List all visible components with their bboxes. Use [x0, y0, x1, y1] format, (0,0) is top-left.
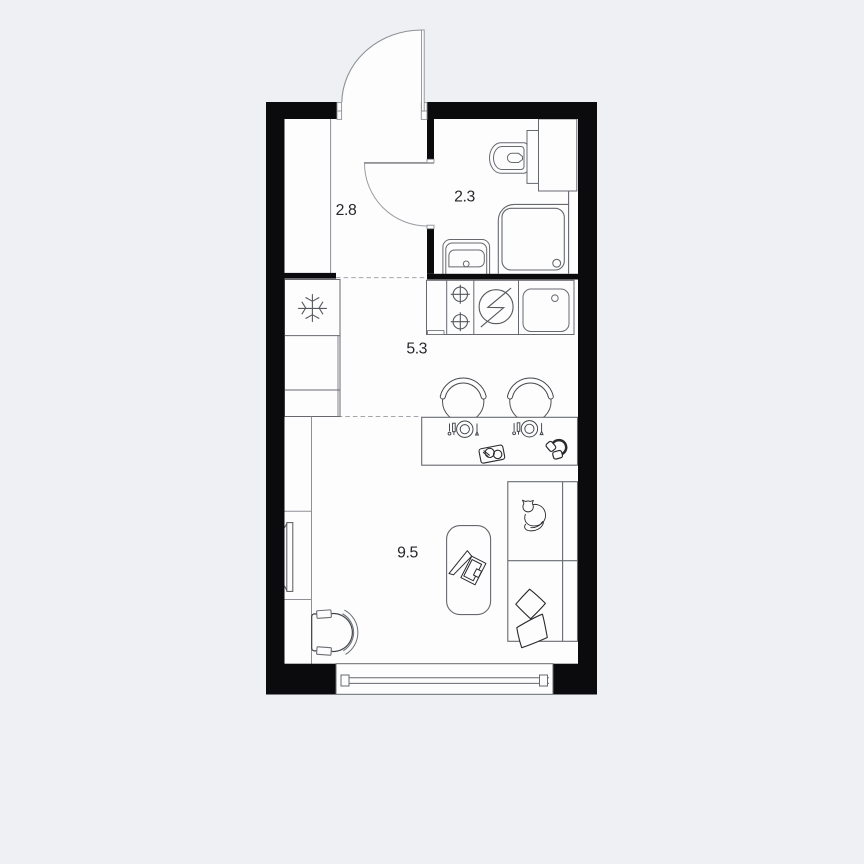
svg-text:9.5: 9.5 — [397, 545, 418, 562]
svg-text:2.8: 2.8 — [336, 202, 357, 219]
svg-text:5.3: 5.3 — [406, 341, 427, 358]
svg-text:2.3: 2.3 — [454, 188, 475, 205]
